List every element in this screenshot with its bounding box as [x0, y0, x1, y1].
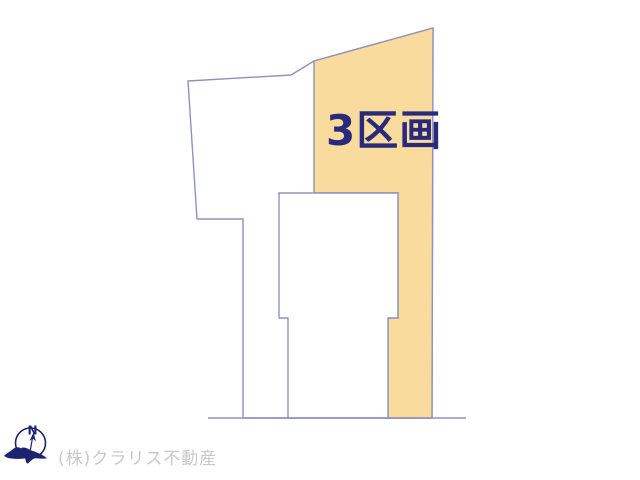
- company-watermark: (株)クラリス不動産: [58, 451, 217, 468]
- compass-north-label: N: [27, 424, 37, 438]
- parcel-label: 3区画: [326, 106, 442, 155]
- compass: N: [4, 424, 47, 464]
- compass-bird-shape: [4, 447, 47, 463]
- plot-map-canvas: 3区画 N (株)クラリス不動産: [0, 0, 640, 480]
- building-footprint: [279, 193, 398, 418]
- plot-map: 3区画 N: [0, 0, 640, 480]
